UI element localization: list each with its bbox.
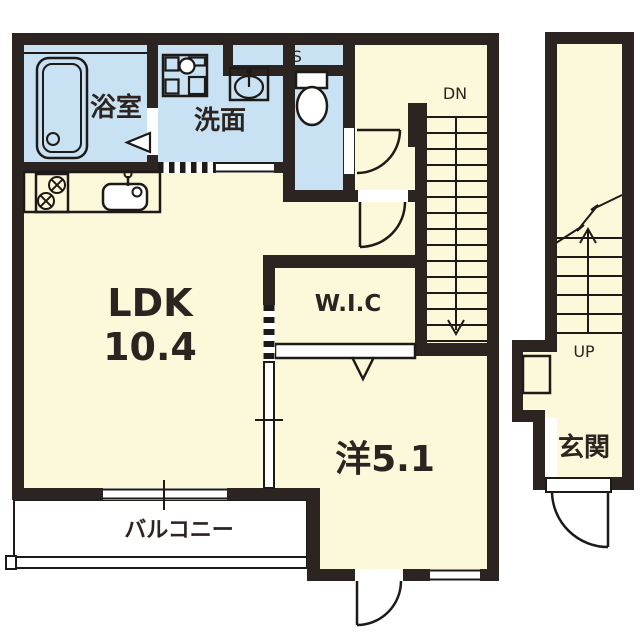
- wall-segment: [12, 33, 499, 45]
- wic-front-panel: [275, 344, 415, 358]
- wall-segment: [545, 32, 557, 352]
- washing-machine-icon: [163, 55, 207, 96]
- pipe-space-label: PS: [282, 47, 302, 66]
- ldk-area-label: 10.4: [103, 325, 197, 369]
- western-room-label: 洋5.1: [335, 439, 435, 480]
- wall-segment: [487, 33, 499, 581]
- wall-segment: [512, 340, 523, 422]
- western-door-swing: [357, 581, 401, 625]
- floorplan-svg: 浴室 洗面 PS DN LDK 10.4 W.I.C 洋5.1 バルコニー UP…: [0, 0, 640, 640]
- balcony-label: バルコニー: [124, 518, 234, 543]
- wall-segment: [408, 103, 427, 147]
- thin-partition: [264, 362, 274, 488]
- stairs-up-label: UP: [573, 342, 595, 361]
- stairs-down-label: DN: [443, 84, 467, 103]
- entrance-threshold: [546, 478, 611, 492]
- wall-segment: [343, 45, 355, 202]
- entrance-label: 玄関: [558, 432, 610, 463]
- ldk-label: LDK: [107, 281, 194, 325]
- toilet-icon: [296, 72, 327, 125]
- wall-segment: [415, 147, 427, 356]
- wall-segment: [545, 32, 634, 44]
- wall-segment: [12, 33, 24, 500]
- entrance-door-swing: [552, 492, 608, 547]
- wic-label: W.I.C: [315, 291, 381, 317]
- washroom-label: 洗面: [194, 106, 246, 136]
- shoe-cabinet: [523, 356, 550, 393]
- toilet-door-opening: [344, 128, 354, 174]
- wall-segment: [263, 255, 427, 268]
- floorplan-canvas: 浴室 洗面 PS DN LDK 10.4 W.I.C 洋5.1 バルコニー UP…: [0, 0, 640, 640]
- hall-door-opening: [358, 190, 408, 202]
- wall-segment: [263, 255, 275, 307]
- western-door-opening: [355, 569, 403, 581]
- bathtub-icon: [37, 58, 87, 158]
- wall-segment: [412, 343, 499, 356]
- bathroom-label: 浴室: [90, 92, 142, 123]
- balcony-rail-endcap: [6, 556, 16, 569]
- wall-segment: [622, 32, 634, 490]
- stairwell-floor: [557, 44, 622, 477]
- wall-segment: [307, 488, 320, 581]
